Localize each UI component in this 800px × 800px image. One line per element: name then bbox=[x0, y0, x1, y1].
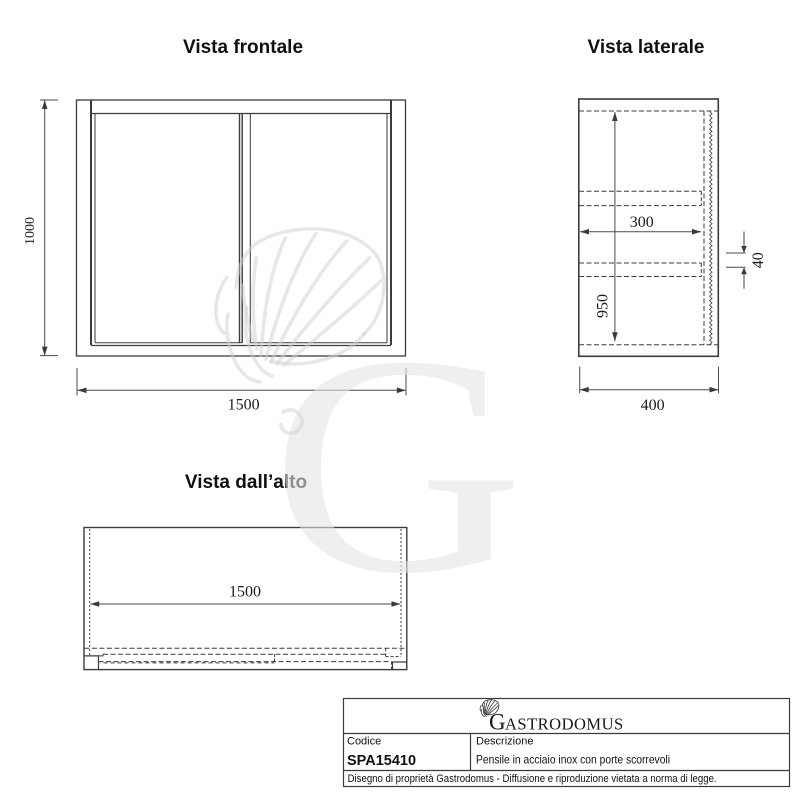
svg-text:1000: 1000 bbox=[23, 217, 38, 245]
svg-text:SPA15410: SPA15410 bbox=[347, 753, 416, 769]
svg-text:1500: 1500 bbox=[229, 584, 261, 601]
svg-text:Vista frontale: Vista frontale bbox=[183, 37, 303, 58]
svg-text:Disegno di proprietà Gastrodom: Disegno di proprietà Gastrodomus - Diffu… bbox=[348, 773, 717, 785]
svg-text:400: 400 bbox=[641, 397, 665, 414]
svg-text:Vista laterale: Vista laterale bbox=[588, 37, 705, 58]
svg-text:40: 40 bbox=[750, 252, 767, 268]
svg-text:300: 300 bbox=[630, 214, 654, 231]
svg-text:ASTRODOMUS: ASTRODOMUS bbox=[505, 715, 624, 734]
svg-text:Codice: Codice bbox=[347, 736, 381, 748]
svg-text:Descrizione: Descrizione bbox=[476, 736, 533, 748]
svg-text:950: 950 bbox=[595, 294, 612, 318]
svg-text:G: G bbox=[489, 710, 506, 735]
svg-text:Pensile in acciaio inox con po: Pensile in acciaio inox con porte scorre… bbox=[476, 753, 670, 767]
svg-text:1500: 1500 bbox=[228, 397, 260, 414]
